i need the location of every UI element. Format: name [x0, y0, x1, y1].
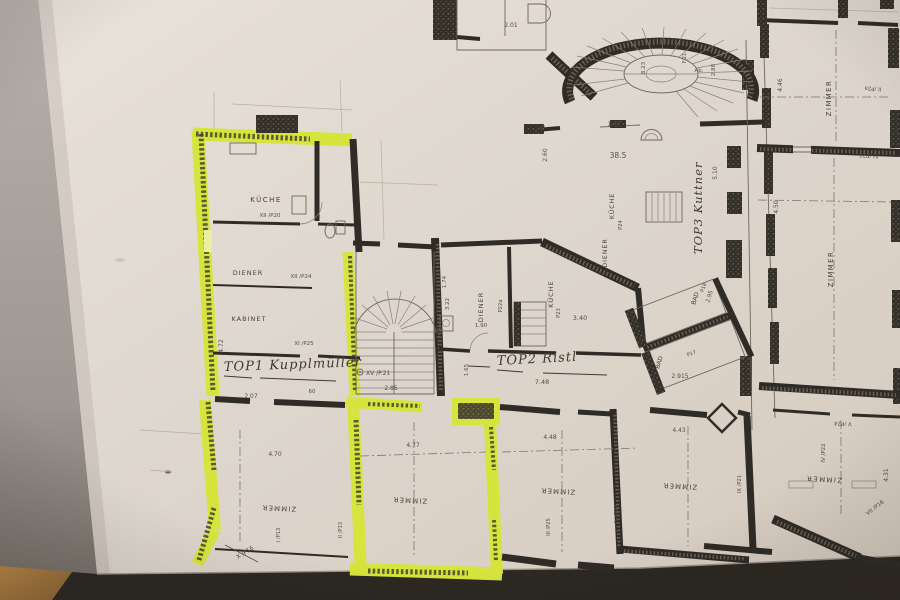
- photo-vignette: [0, 0, 900, 600]
- floorplan-photo: KÜCHE XII /P20 DIENER XII /P24 KABINET X…: [0, 0, 900, 600]
- floorplan-svg: KÜCHE XII /P20 DIENER XII /P24 KABINET X…: [0, 0, 900, 600]
